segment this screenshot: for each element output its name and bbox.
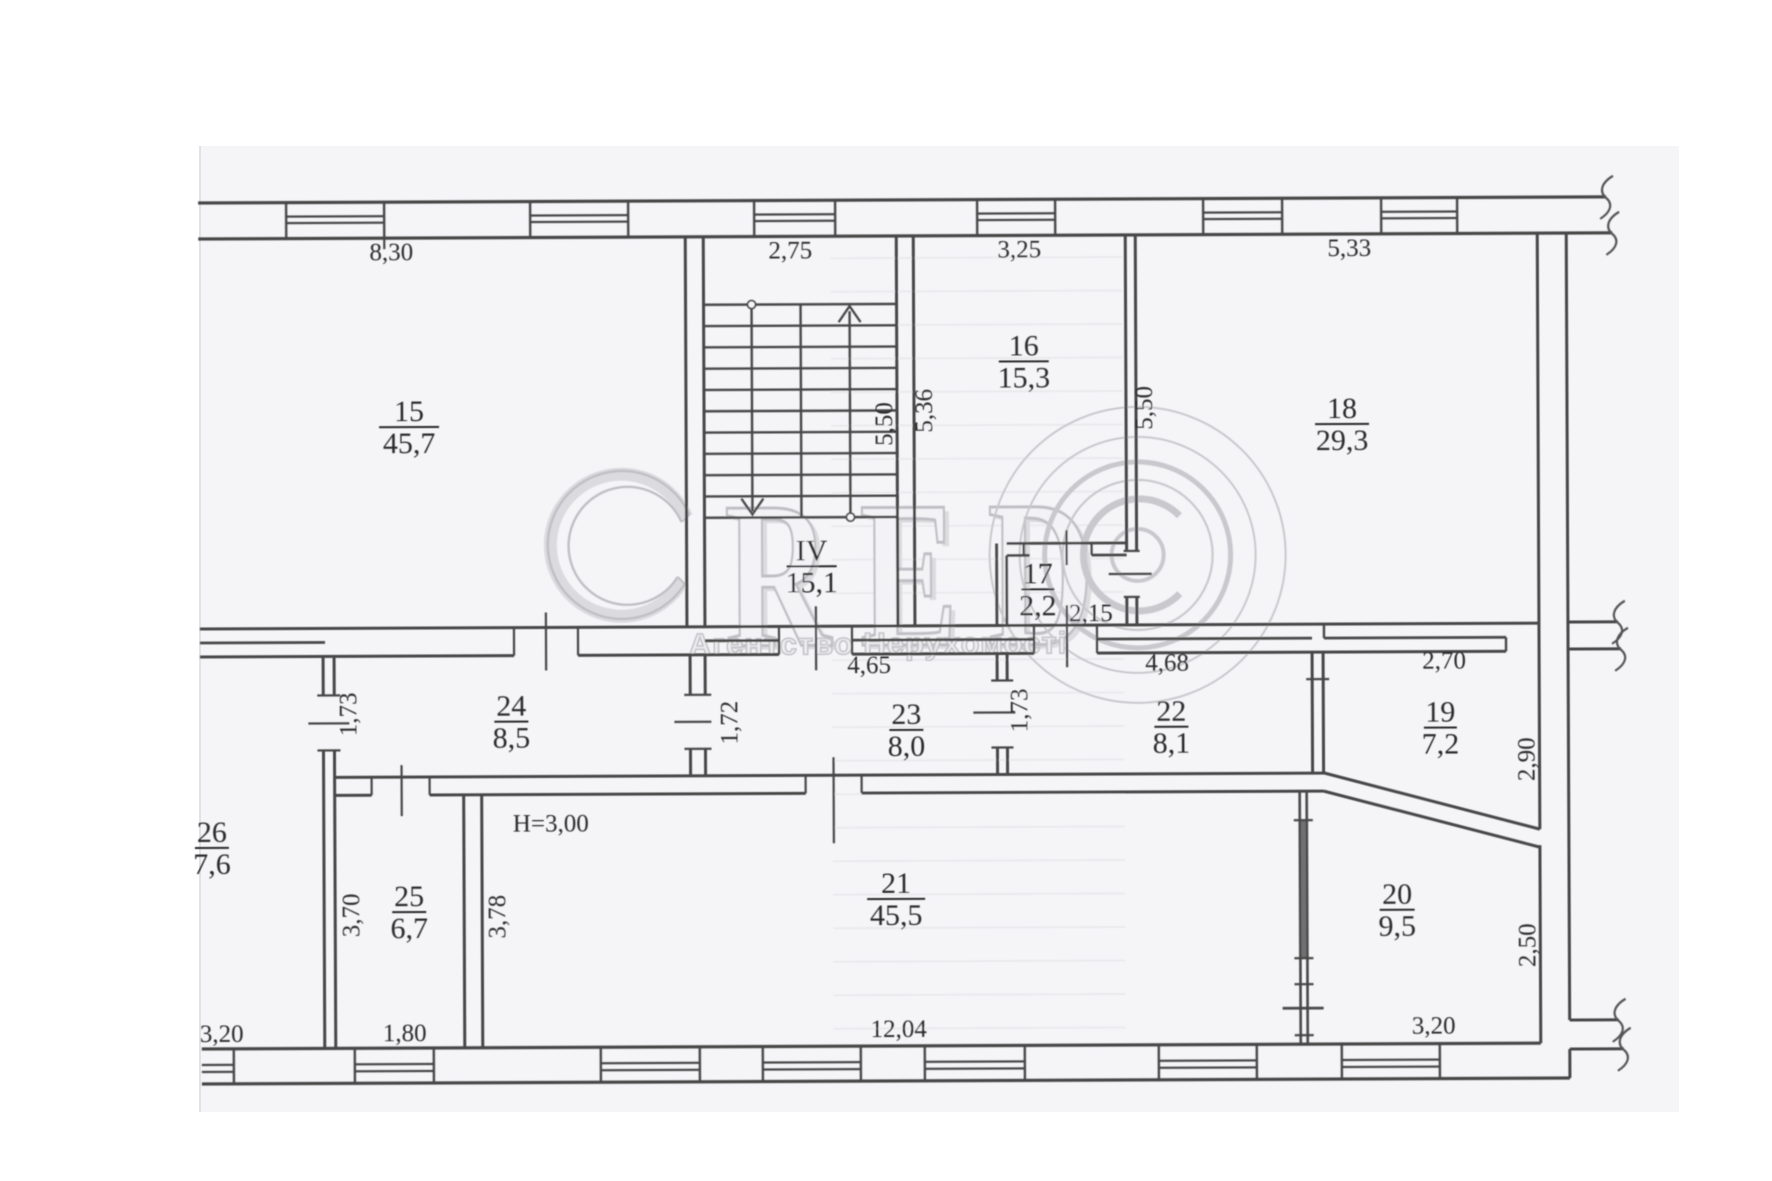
- svg-text:1,73: 1,73: [335, 692, 362, 736]
- svg-text:3,78: 3,78: [484, 895, 511, 939]
- svg-text:7,2: 7,2: [1422, 728, 1460, 761]
- svg-text:2,75: 2,75: [768, 237, 812, 264]
- svg-text:6,7: 6,7: [390, 912, 428, 945]
- svg-text:20: 20: [1382, 878, 1412, 911]
- svg-text:5,36: 5,36: [911, 389, 938, 433]
- svg-text:8,0: 8,0: [888, 730, 926, 763]
- svg-text:8,30: 8,30: [369, 239, 413, 266]
- svg-text:45,7: 45,7: [383, 427, 436, 460]
- svg-text:3,25: 3,25: [997, 236, 1041, 263]
- svg-text:8,5: 8,5: [493, 722, 531, 755]
- svg-text:21: 21: [881, 867, 911, 900]
- svg-text:25: 25: [394, 880, 424, 913]
- svg-text:2,50: 2,50: [1514, 923, 1541, 967]
- svg-text:IV: IV: [796, 534, 828, 567]
- svg-text:15,3: 15,3: [998, 361, 1051, 394]
- svg-text:29,3: 29,3: [1316, 424, 1369, 457]
- svg-text:5,33: 5,33: [1327, 235, 1371, 262]
- svg-text:8,1: 8,1: [1153, 727, 1191, 760]
- svg-text:2,70: 2,70: [1422, 647, 1466, 674]
- svg-text:3,20: 3,20: [1412, 1013, 1456, 1040]
- svg-text:45,5: 45,5: [870, 899, 923, 932]
- svg-text:3,70: 3,70: [338, 893, 365, 937]
- svg-text:3,20: 3,20: [200, 1021, 244, 1048]
- svg-text:16: 16: [1009, 329, 1039, 362]
- svg-text:1,73: 1,73: [1006, 688, 1033, 732]
- svg-text:5,50: 5,50: [1131, 386, 1158, 430]
- svg-text:2,90: 2,90: [1513, 737, 1540, 781]
- svg-text:26: 26: [197, 816, 227, 849]
- svg-text:H=3,00: H=3,00: [513, 810, 589, 837]
- svg-text:1,72: 1,72: [716, 701, 743, 745]
- svg-text:5,50: 5,50: [871, 402, 898, 446]
- svg-text:19: 19: [1425, 696, 1455, 729]
- svg-text:15,1: 15,1: [785, 566, 838, 599]
- svg-text:12,04: 12,04: [871, 1016, 928, 1043]
- svg-text:4,68: 4,68: [1145, 650, 1189, 677]
- svg-text:2,15: 2,15: [1069, 600, 1113, 627]
- svg-text:22: 22: [1156, 695, 1186, 728]
- svg-text:15: 15: [394, 395, 424, 428]
- svg-text:7,6: 7,6: [193, 848, 231, 881]
- svg-text:17: 17: [1023, 557, 1053, 590]
- svg-text:23: 23: [891, 698, 921, 731]
- svg-text:24: 24: [496, 690, 526, 723]
- svg-text:4,65: 4,65: [847, 652, 891, 679]
- svg-text:9,5: 9,5: [1378, 910, 1416, 943]
- svg-text:18: 18: [1327, 392, 1357, 425]
- svg-text:1,80: 1,80: [383, 1020, 427, 1047]
- svg-text:2,2: 2,2: [1019, 589, 1057, 622]
